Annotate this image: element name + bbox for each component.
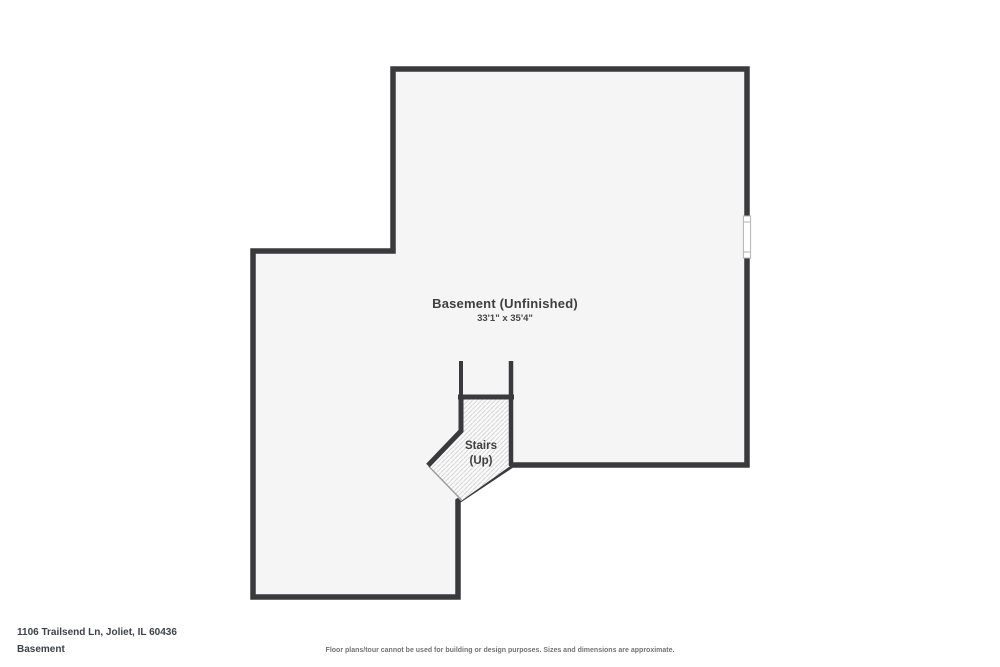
stairs-label-line1: Stairs bbox=[465, 439, 497, 454]
floor-name-text: Basement bbox=[17, 644, 65, 655]
stairs-label-line2: (Up) bbox=[465, 454, 497, 469]
stairs-label: Stairs (Up) bbox=[465, 439, 497, 469]
basement-room-outline bbox=[253, 69, 747, 597]
floor-plan-page: Basement (Unfinished) 33'1" x 35'4" Stai… bbox=[0, 0, 1000, 667]
disclaimer-text: Floor plans/tour cannot be used for buil… bbox=[326, 647, 675, 654]
floor-plan-drawing bbox=[0, 0, 1000, 667]
address-text: 1106 Trailsend Ln, Joliet, IL 60436 bbox=[17, 627, 177, 638]
room-dimensions: 33'1" x 35'4" bbox=[477, 313, 533, 324]
window-symbol bbox=[743, 216, 750, 258]
room-label: Basement (Unfinished) bbox=[432, 296, 578, 311]
